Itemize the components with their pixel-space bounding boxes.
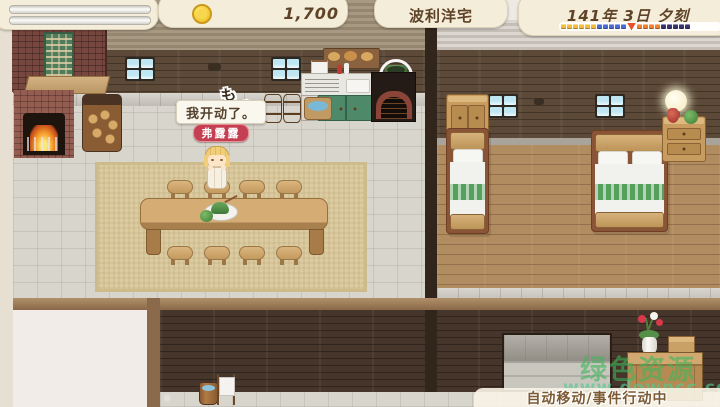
exterior-wall-divider bbox=[425, 310, 437, 392]
date-panel: 141年 3日 夕刻 bbox=[518, 0, 720, 36]
character-hand bbox=[221, 165, 226, 170]
barrel bbox=[264, 94, 282, 123]
sink-basin bbox=[346, 79, 370, 93]
game-screen: も く 我开动了。 弗露露 bbox=[0, 0, 720, 407]
bottom-beam bbox=[13, 298, 720, 310]
table-leg bbox=[146, 229, 161, 255]
bread-loaf bbox=[344, 51, 357, 61]
coin-icon bbox=[192, 4, 212, 24]
stool bbox=[276, 180, 302, 194]
time-bar bbox=[559, 22, 720, 31]
bedroom-window-1 bbox=[488, 94, 518, 118]
outside-void bbox=[13, 310, 147, 407]
character-sidelock bbox=[226, 155, 230, 167]
character-fululu bbox=[202, 143, 232, 197]
single-bed[interactable] bbox=[446, 128, 489, 234]
stool bbox=[167, 180, 193, 194]
money-value: 1,700 bbox=[254, 4, 339, 23]
fireplace-opening bbox=[23, 113, 65, 155]
bread-shelf bbox=[323, 48, 380, 69]
stamina-bar-1 bbox=[9, 5, 151, 14]
bread-loaf bbox=[361, 52, 373, 61]
character-hand bbox=[208, 165, 213, 170]
fireplace-plaque bbox=[44, 32, 74, 82]
potted-plant bbox=[684, 110, 698, 124]
money-panel: 1,700 bbox=[158, 0, 348, 28]
left-window-2 bbox=[271, 57, 301, 81]
double-bed[interactable] bbox=[591, 130, 668, 232]
character-body bbox=[207, 167, 227, 189]
red-vase bbox=[667, 108, 679, 123]
stool bbox=[239, 246, 265, 260]
water-bucket bbox=[199, 382, 218, 405]
left-window-1 bbox=[125, 57, 155, 81]
stool bbox=[204, 246, 230, 260]
barrel bbox=[283, 94, 301, 123]
wall-ornament-left bbox=[208, 63, 221, 71]
firewood-pile bbox=[82, 94, 122, 152]
wash-basin bbox=[304, 97, 332, 120]
stamina-bar-2 bbox=[9, 16, 151, 25]
counter-bottles bbox=[337, 63, 351, 74]
stool bbox=[239, 180, 265, 194]
oven-arch bbox=[376, 91, 412, 119]
stone-oven bbox=[371, 72, 416, 122]
dish-rack bbox=[305, 78, 339, 92]
flower-red bbox=[656, 319, 663, 326]
location-name: 波利洋宅 bbox=[375, 5, 507, 26]
flower-red bbox=[638, 315, 646, 323]
bread-loaf bbox=[328, 52, 340, 61]
stool bbox=[276, 246, 302, 260]
status-message-bar: 自动移动/事件行动中 bbox=[474, 388, 720, 407]
nightstand bbox=[662, 116, 706, 162]
towel-rack bbox=[217, 374, 235, 405]
meal-dish bbox=[211, 202, 229, 214]
meal-plate bbox=[202, 201, 238, 222]
void-border bbox=[147, 298, 160, 407]
table-leg bbox=[309, 229, 324, 255]
meal-bowl bbox=[200, 210, 213, 222]
wall-ornament-bedroom bbox=[534, 98, 544, 105]
location-panel: 波利洋宅 bbox=[374, 0, 508, 28]
stool bbox=[167, 246, 193, 260]
status-message-text: 自动移动/事件行动中 bbox=[526, 388, 667, 407]
stamina-panel bbox=[0, 0, 159, 30]
character-name-tag: 弗露露 bbox=[193, 124, 249, 142]
kitchen-counter bbox=[301, 73, 379, 97]
speech-bubble: 我开动了。 bbox=[176, 100, 266, 124]
bedroom-window-2 bbox=[595, 94, 625, 118]
fire-grate bbox=[27, 137, 61, 151]
